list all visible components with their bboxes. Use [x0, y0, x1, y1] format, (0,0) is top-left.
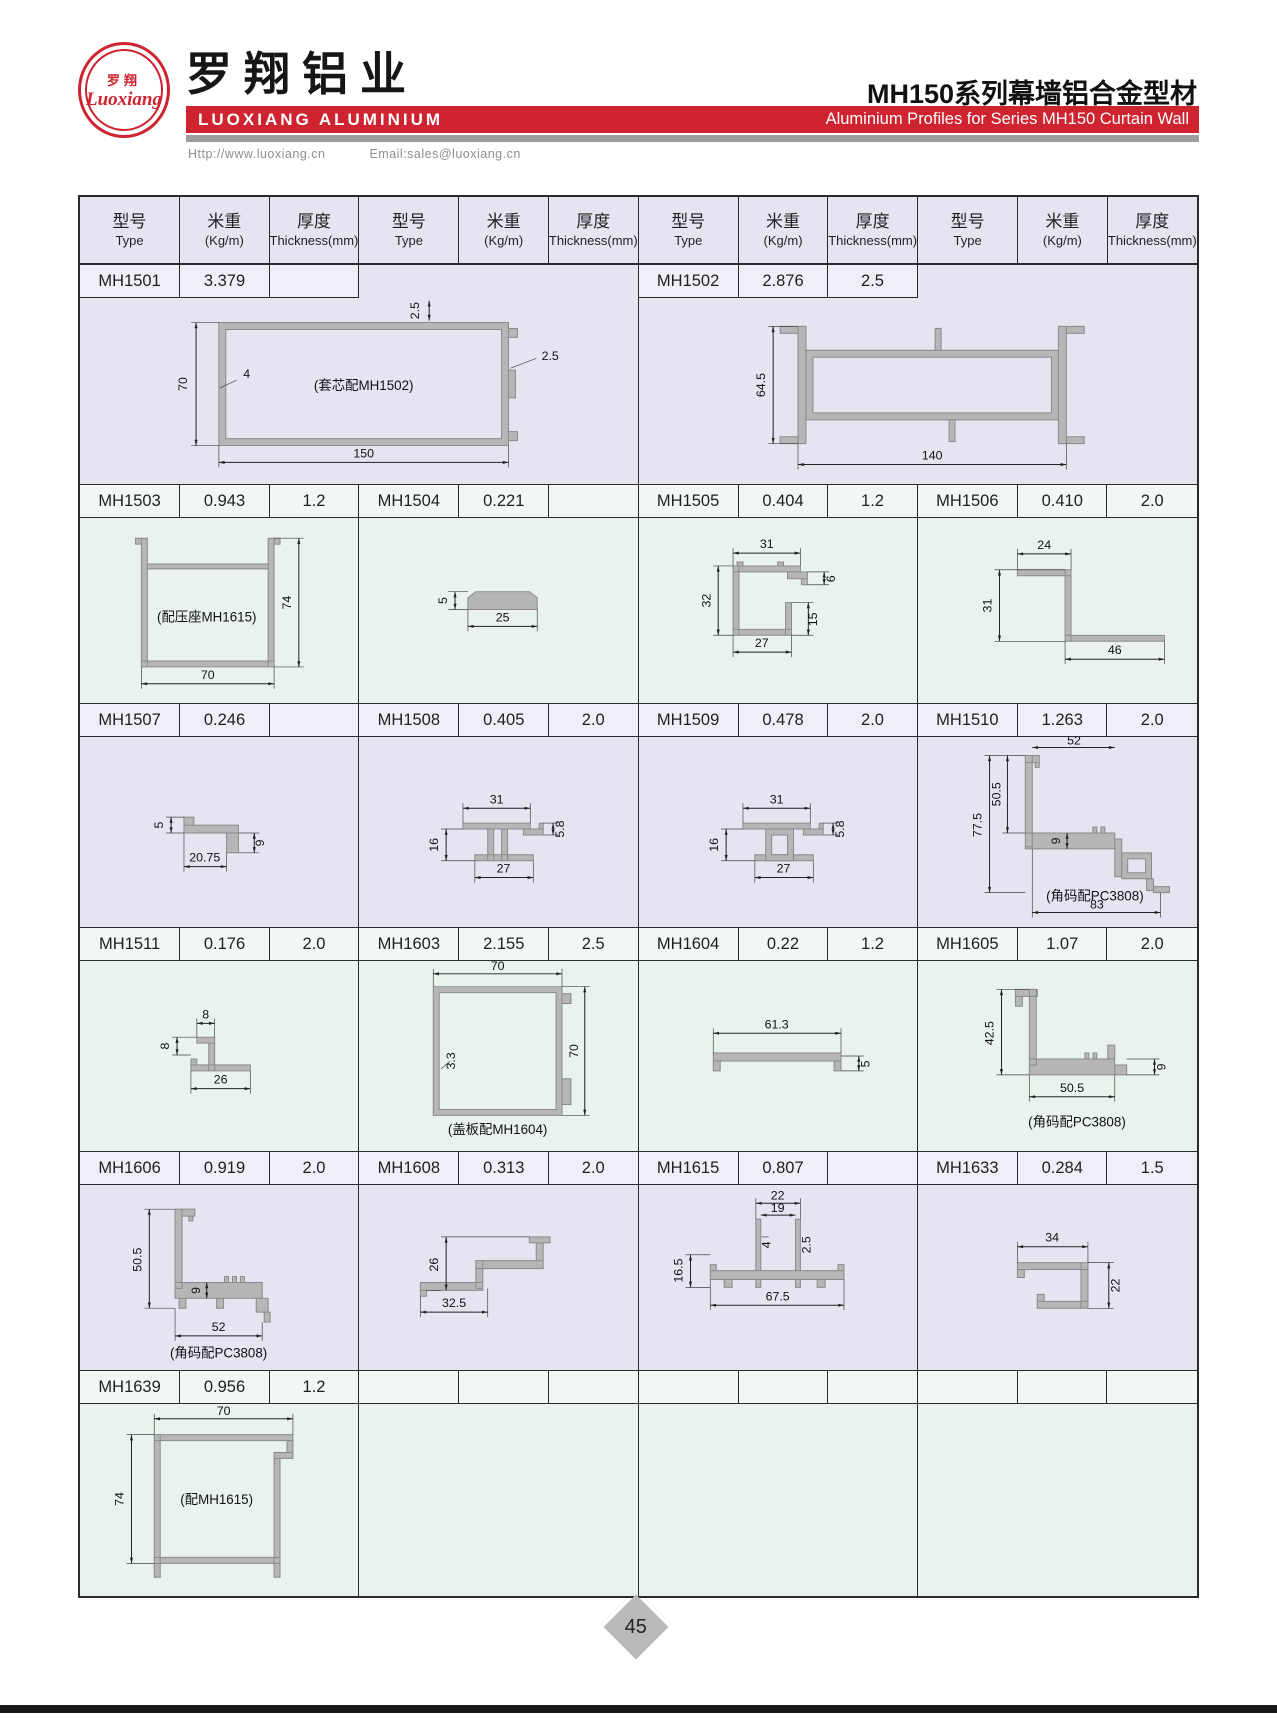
- profile-drawing-mh1506: 24 31 46: [918, 518, 1197, 703]
- dim-width: 150: [353, 446, 374, 460]
- type-cell: MH1502: [639, 265, 739, 298]
- dim-bottom: 50.5: [1060, 1081, 1084, 1095]
- profile-drawing-mh1504: 5 25: [359, 518, 638, 703]
- col-weight-cn: 米重: [207, 211, 241, 232]
- dim-top: 70: [217, 1404, 231, 1418]
- empty-cell: [1107, 265, 1197, 298]
- drawing-row: 50.5 9 52 (角码配PC3808) 26 32.5: [80, 1185, 1197, 1370]
- weight-cell: 0.313: [459, 1152, 549, 1185]
- mh1504-drawing: 5 25: [359, 518, 637, 703]
- profile-drawing-mh1501: 70 4 2.5 2.5 150 (套芯配MH1502): [80, 298, 639, 484]
- profiles-table: 型号Type 米重(Kg/m) 厚度Thickness(mm) 型号Type 米…: [78, 195, 1199, 1598]
- dim-left: 16: [427, 838, 441, 852]
- dim-left: 5: [152, 822, 166, 829]
- dim-top: 31: [769, 792, 783, 806]
- dim-r2: 15: [806, 612, 820, 626]
- profile-note: (角码配PC3808): [170, 1346, 267, 1361]
- dim-mid: 9: [1049, 837, 1063, 844]
- thickness-cell: 2.5: [828, 265, 918, 298]
- type-cell: MH1504: [359, 485, 459, 518]
- col-header-thickness: 厚度Thickness(mm): [270, 197, 360, 263]
- col-thickness-cn: 厚度: [297, 211, 331, 232]
- profile-drawing-mh1633: 34 22: [918, 1185, 1197, 1370]
- col-header-thickness: 厚度Thickness(mm): [549, 197, 639, 263]
- weight-cell: 0.405: [459, 704, 549, 737]
- dim-mid: 9: [189, 1287, 203, 1294]
- dim-w4: 4: [759, 1241, 773, 1248]
- weight-cell: 0.246: [180, 704, 270, 737]
- dim-bottom: 67.5: [765, 1289, 789, 1303]
- mh1507-drawing: 5 9 20.75: [80, 737, 358, 927]
- empty-cell: [359, 265, 459, 298]
- page-number: 45: [625, 1616, 647, 1639]
- profile-drawing-mh1505: 31 32 6 15 27: [639, 518, 918, 703]
- dim-top: 24: [1037, 538, 1051, 552]
- weight-cell: 0.410: [1018, 485, 1108, 518]
- profile-note: (套芯配MH1502): [314, 378, 414, 393]
- profile-drawing-mh1605: 42.5 9 50.5 (角码配PC3808): [918, 961, 1197, 1151]
- table-header-row: 型号Type 米重(Kg/m) 厚度Thickness(mm) 型号Type 米…: [80, 197, 1197, 265]
- empty-cell: [918, 265, 1018, 298]
- type-cell: MH1506: [918, 485, 1018, 518]
- profile-shape: [1017, 1263, 1088, 1309]
- profile-detail: [780, 326, 1084, 443]
- col-header-weight: 米重(Kg/m): [739, 197, 828, 263]
- type-cell: MH1615: [639, 1152, 739, 1185]
- dim-t25: 2.5: [799, 1236, 813, 1253]
- mh1639-drawing: 70 74 (配MH1615): [80, 1404, 358, 1596]
- empty-cell: [359, 1371, 459, 1404]
- dim-bottom: 27: [754, 636, 768, 650]
- label-row: MH1639 0.956 1.2: [80, 1371, 1197, 1404]
- type-cell: MH1507: [80, 704, 180, 737]
- dim-right: 70: [567, 1044, 581, 1058]
- header-gray-bar: [186, 135, 1199, 142]
- dim-bottom: 26: [214, 1073, 228, 1087]
- weight-cell: 0.176: [180, 928, 270, 961]
- profile-drawing-mh1509: 31 5.8 16 27: [639, 737, 918, 927]
- profile-drawing-mh1507: 5 9 20.75: [80, 737, 359, 927]
- empty-cell: [1107, 1371, 1197, 1404]
- profile-shape: [191, 1037, 250, 1071]
- profile-detail: [1121, 853, 1151, 879]
- profile-drawing-mh1606: 50.5 9 52 (角码配PC3808): [80, 1185, 359, 1370]
- logo-cn-text: 罗翔: [107, 70, 141, 89]
- dim-right: 2.5: [542, 349, 559, 363]
- mh1604-drawing: 61.3 5: [639, 961, 917, 1151]
- empty-cell: [918, 1371, 1018, 1404]
- weight-cell: 0.956: [180, 1371, 270, 1404]
- dim-bottom: 32.5: [442, 1296, 466, 1310]
- col-header-weight: 米重(Kg/m): [180, 197, 269, 263]
- mh1511-drawing: 8 8 26: [80, 961, 358, 1151]
- weight-cell: 0.943: [180, 485, 270, 518]
- profile-shape: [1015, 989, 1126, 1074]
- empty-cell: [639, 1371, 739, 1404]
- type-cell: MH1606: [80, 1152, 180, 1185]
- dim-left: 50.5: [130, 1248, 144, 1272]
- profile-drawing-mh1511: 8 8 26: [80, 961, 359, 1151]
- profile-shape: [135, 538, 280, 667]
- profile-shape: [463, 823, 543, 861]
- dim-bottom: 27: [497, 862, 511, 876]
- drawing-row: 70 74 (配MH1615): [80, 1404, 1197, 1596]
- type-cell: MH1608: [359, 1152, 459, 1185]
- thickness-cell: 2.0: [549, 1152, 639, 1185]
- weight-cell: 0.919: [180, 1152, 270, 1185]
- type-cell: MH1505: [639, 485, 739, 518]
- page-number-diamond: 45: [603, 1594, 668, 1659]
- label-row: MH1511 0.176 2.0 MH1603 2.155 2.5 MH1604…: [80, 928, 1197, 961]
- profile-shape: [733, 562, 807, 635]
- dim-top: 34: [1045, 1231, 1059, 1245]
- dim-bottom: 20.75: [189, 851, 220, 865]
- col-header-weight: 米重(Kg/m): [459, 197, 548, 263]
- type-cell: MH1501: [80, 265, 180, 298]
- profile-note: (角码配PC3808): [1046, 889, 1144, 904]
- header-red-bar: LUOXIANG ALUMINIUM Aluminium Profiles fo…: [186, 106, 1199, 133]
- empty-cell: [828, 1371, 918, 1404]
- dim-right: 5: [858, 1060, 872, 1067]
- thickness-cell: 2.0: [1107, 928, 1197, 961]
- dim-wall: 4: [243, 367, 250, 381]
- profile-drawing-mh1608: 26 32.5: [359, 1185, 638, 1370]
- drawing-row: 8 8 26 70 3.3: [80, 961, 1197, 1151]
- mh1608-drawing: 26 32.5: [359, 1185, 637, 1370]
- dim-top: 31: [490, 792, 504, 806]
- weight-cell: 2.155: [459, 928, 549, 961]
- dim-top: 2.5: [408, 302, 422, 319]
- profile-shape: [434, 987, 563, 1116]
- dim-height: 5: [436, 597, 450, 604]
- dim-height: 64.5: [754, 373, 768, 397]
- company-name-en: LUOXIANG ALUMINIUM: [198, 110, 443, 130]
- dim-left: 77.5: [970, 813, 984, 837]
- drawing-row: 70 4 2.5 2.5 150 (套芯配MH1502): [80, 298, 1197, 484]
- col-header-thickness: 厚度Thickness(mm): [1108, 197, 1197, 263]
- col-header-thickness: 厚度Thickness(mm): [828, 197, 918, 263]
- profile-drawing-mh1603: 70 3.3 70 (盖板配MH1604): [359, 961, 638, 1151]
- dim-left: 26: [427, 1258, 441, 1272]
- dim-top: 31: [759, 537, 773, 551]
- type-cell: MH1511: [80, 928, 180, 961]
- dim-left: 16.5: [671, 1258, 685, 1282]
- profile-shape: [175, 1209, 270, 1322]
- profile-shape: [805, 350, 1057, 420]
- thickness-cell: 2.0: [1107, 485, 1197, 518]
- empty-cell: [459, 265, 549, 298]
- empty-cell: [1018, 265, 1108, 298]
- mh1510-drawing: 52 77.5 50.5 9 83 (角码配PC3808): [918, 737, 1197, 927]
- dim-top: 70: [491, 961, 505, 973]
- profile-drawing-mh1604: 61.3 5: [639, 961, 918, 1151]
- weight-cell: 0.807: [739, 1152, 829, 1185]
- dim-top: 52: [1067, 737, 1081, 748]
- thickness-cell: 1.2: [828, 485, 918, 518]
- dim-bottom: 27: [776, 862, 790, 876]
- thickness-cell: 2.0: [270, 928, 360, 961]
- dim-height: 70: [176, 377, 190, 391]
- drawing-row: 74 70 (配压座MH1615) 5 25: [80, 518, 1197, 703]
- dim-width: 70: [201, 668, 215, 682]
- label-row: MH1501 3.379 MH1502 2.876 2.5: [80, 265, 1197, 298]
- thickness-cell: 2.0: [1107, 704, 1197, 737]
- mh1501-drawing: 70 4 2.5 2.5 150 (套芯配MH1502): [80, 298, 638, 484]
- profile-shape: [710, 1219, 844, 1287]
- weight-cell: 2.876: [739, 265, 829, 298]
- mh1603-drawing: 70 3.3 70 (盖板配MH1604): [359, 961, 637, 1151]
- empty-cell: [549, 265, 639, 298]
- profile-note: (盖板配MH1604): [448, 1122, 547, 1137]
- col-header-type: 型号Type: [639, 197, 739, 263]
- band-mh1511-mh1605: MH1511 0.176 2.0 MH1603 2.155 2.5 MH1604…: [80, 927, 1197, 1151]
- dim-left: 8: [158, 1043, 172, 1050]
- mh1509-drawing: 31 5.8 16 27: [639, 737, 917, 927]
- type-cell: MH1503: [80, 485, 180, 518]
- col-header-weight: 米重(Kg/m): [1018, 197, 1107, 263]
- mh1605-drawing: 42.5 9 50.5 (角码配PC3808): [918, 961, 1197, 1151]
- profile-drawing-mh1508: 31 5.8 16 27: [359, 737, 638, 927]
- thickness-cell: [270, 704, 360, 737]
- col-weight-en: (Kg/m): [205, 233, 244, 249]
- col-header-type: 型号Type: [918, 197, 1018, 263]
- mh1503-drawing: 74 70 (配压座MH1615): [80, 518, 358, 703]
- thickness-cell: [549, 485, 639, 518]
- company-name-cn: 罗翔铝业: [186, 38, 418, 104]
- dim-left: 31: [980, 599, 994, 613]
- contact-row: Http://www.luoxiang.cn Email:sales@luoxi…: [188, 147, 521, 161]
- empty-drawing-cell: [918, 1404, 1197, 1596]
- empty-cell: [739, 1371, 829, 1404]
- empty-cell: [459, 1371, 549, 1404]
- profile-shape: [713, 1053, 841, 1071]
- type-cell: MH1604: [639, 928, 739, 961]
- dim-width: 25: [496, 610, 510, 624]
- profile-drawing-mh1502: 64.5 140: [639, 298, 1198, 484]
- footer-rule: [0, 1705, 1277, 1713]
- mh1633-drawing: 34 22: [918, 1185, 1197, 1370]
- col-type-en: Type: [115, 233, 143, 249]
- weight-cell: 0.221: [459, 485, 549, 518]
- type-cell: MH1639: [80, 1371, 180, 1404]
- thickness-cell: 2.5: [549, 928, 639, 961]
- label-row: MH1507 0.246 MH1508 0.405 2.0 MH1509 0.4…: [80, 704, 1197, 737]
- type-cell: MH1509: [639, 704, 739, 737]
- band-mh1501-mh1502: MH1501 3.379 MH1502 2.876 2.5 70: [80, 265, 1197, 484]
- thickness-cell: [270, 265, 360, 298]
- profile-note: (配MH1615): [180, 1492, 253, 1507]
- label-row: MH1503 0.943 1.2 MH1504 0.221 MH1505 0.4…: [80, 485, 1197, 518]
- weight-cell: 3.379: [180, 265, 270, 298]
- dim-tr: 5.8: [832, 820, 846, 837]
- band-mh1503-mh1506: MH1503 0.943 1.2 MH1504 0.221 MH1505 0.4…: [80, 484, 1197, 703]
- empty-drawing-cell: [639, 1404, 918, 1596]
- dim-right: 9: [253, 839, 267, 846]
- company-logo: 罗翔 Luoxiang: [78, 42, 170, 138]
- weight-cell: 0.478: [739, 704, 829, 737]
- dim-width: 140: [921, 449, 942, 463]
- thickness-cell: 1.2: [828, 928, 918, 961]
- weight-cell: 1.263: [1018, 704, 1108, 737]
- dim-left: 42.5: [982, 1021, 996, 1045]
- profile-shape: [1017, 570, 1164, 642]
- profile-detail: [509, 329, 518, 441]
- profile-shape: [184, 817, 238, 853]
- mh1502-drawing: 64.5 140: [639, 298, 1198, 484]
- type-cell: MH1508: [359, 704, 459, 737]
- col-type-cn: 型号: [113, 211, 147, 232]
- thickness-cell: [828, 1152, 918, 1185]
- mh1606-drawing: 50.5 9 52 (角码配PC3808): [80, 1185, 358, 1370]
- dim-height: 74: [280, 596, 294, 610]
- thickness-cell: 1.5: [1107, 1152, 1197, 1185]
- weight-cell: 0.404: [739, 485, 829, 518]
- dim-left: 74: [113, 1492, 127, 1506]
- thickness-cell: 1.2: [270, 1371, 360, 1404]
- type-cell: MH1510: [918, 704, 1018, 737]
- mh1505-drawing: 31 32 6 15 27: [639, 518, 917, 703]
- dim-bottom: 46: [1108, 643, 1122, 657]
- dim-top: 61.3: [764, 1017, 788, 1031]
- type-cell: MH1605: [918, 928, 1018, 961]
- weight-cell: 0.284: [1018, 1152, 1108, 1185]
- dim-right: 9: [1154, 1063, 1168, 1070]
- type-cell: MH1633: [918, 1152, 1018, 1185]
- dim-tr: 5.8: [553, 820, 567, 837]
- thickness-cell: 1.2: [270, 485, 360, 518]
- col-header-type: 型号Type: [80, 197, 180, 263]
- dim-right: 22: [1108, 1278, 1122, 1292]
- series-title-en: Aluminium Profiles for Series MH150 Curt…: [826, 110, 1189, 129]
- profile-note: (角码配PC3808): [1028, 1115, 1126, 1130]
- profile-drawing-mh1503: 74 70 (配压座MH1615): [80, 518, 359, 703]
- profile-shape: [468, 592, 537, 610]
- thickness-cell: 2.0: [828, 704, 918, 737]
- empty-cell: [1018, 1371, 1108, 1404]
- profile-note: (配压座MH1615): [157, 609, 256, 624]
- thickness-cell: 2.0: [270, 1152, 360, 1185]
- empty-cell: [549, 1371, 639, 1404]
- dim-r1: 6: [824, 575, 838, 582]
- weight-cell: 1.07: [1018, 928, 1108, 961]
- email-text: Email:sales@luoxiang.cn: [369, 147, 520, 161]
- mh1506-drawing: 24 31 46: [918, 518, 1197, 703]
- band-mh1639: MH1639 0.956 1.2 70 74: [80, 1370, 1197, 1596]
- dim-bottom: 52: [212, 1320, 226, 1334]
- profile-detail: [765, 829, 793, 861]
- dim-top: 8: [202, 1007, 209, 1021]
- profile-drawing-mh1510: 52 77.5 50.5 9 83 (角码配PC3808): [918, 737, 1197, 927]
- weight-cell: 0.22: [739, 928, 829, 961]
- website-text: Http://www.luoxiang.cn: [188, 147, 325, 161]
- empty-drawing-cell: [359, 1404, 638, 1596]
- mh1508-drawing: 31 5.8 16 27: [359, 737, 637, 927]
- drawing-row: 5 9 20.75 31 5.8: [80, 737, 1197, 927]
- dim-left: 16: [707, 838, 721, 852]
- mh1615-drawing: 22 19 4 2.5 16.5 67.5: [639, 1185, 917, 1370]
- dim-t2: 19: [770, 1201, 784, 1215]
- logo-script-text: Luoxiang: [86, 89, 162, 111]
- dim-inner: 50.5: [989, 782, 1003, 806]
- dim-wall: 3.3: [444, 1052, 458, 1069]
- profile-drawing-mh1615: 22 19 4 2.5 16.5 67.5: [639, 1185, 918, 1370]
- profile-drawing-mh1639: 70 74 (配MH1615): [80, 1404, 359, 1596]
- dim-left: 32: [699, 594, 713, 608]
- thickness-cell: 2.0: [549, 704, 639, 737]
- col-header-type: 型号Type: [359, 197, 459, 263]
- type-cell: MH1603: [359, 928, 459, 961]
- band-mh1507-mh1510: MH1507 0.246 MH1508 0.405 2.0 MH1509 0.4…: [80, 703, 1197, 927]
- band-mh1606-mh1633: MH1606 0.919 2.0 MH1608 0.313 2.0 MH1615…: [80, 1151, 1197, 1370]
- label-row: MH1606 0.919 2.0 MH1608 0.313 2.0 MH1615…: [80, 1152, 1197, 1185]
- col-thickness-en: Thickness(mm): [270, 233, 359, 249]
